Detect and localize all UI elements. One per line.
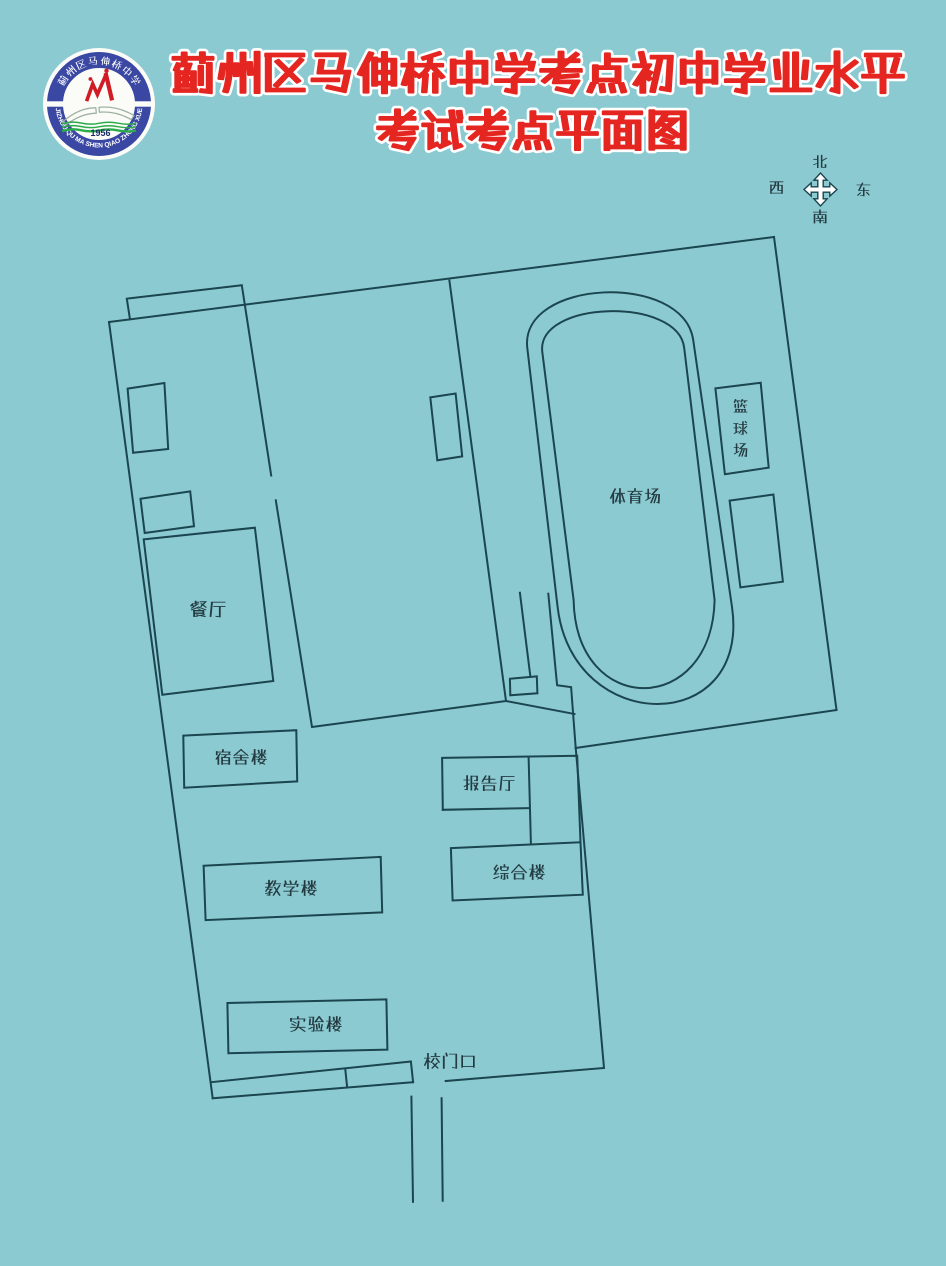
svg-text:1956: 1956 <box>90 128 110 138</box>
